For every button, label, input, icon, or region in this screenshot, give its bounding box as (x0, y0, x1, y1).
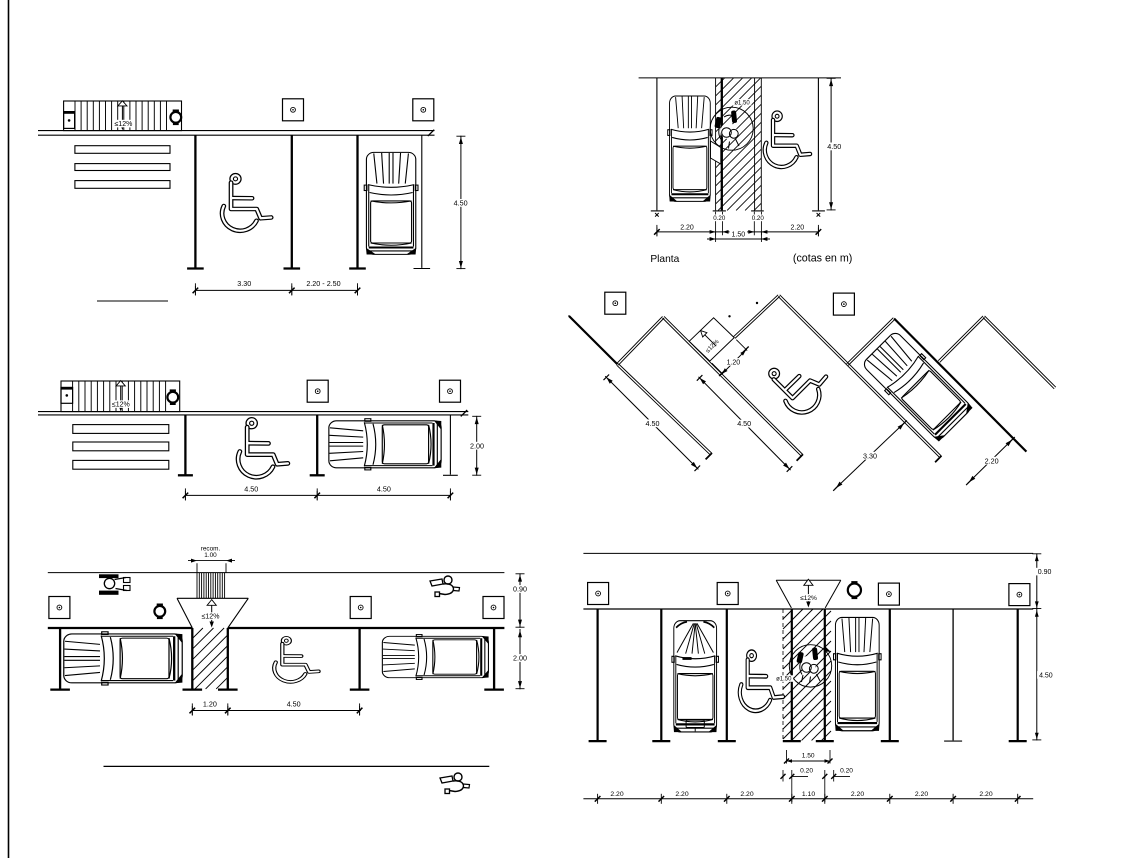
svg-text:4.50: 4.50 (377, 485, 391, 494)
svg-text:≤12%: ≤12% (800, 595, 817, 602)
svg-text:Planta: Planta (650, 254, 679, 265)
svg-text:3.30: 3.30 (237, 279, 251, 288)
svg-text:1.50: 1.50 (802, 752, 815, 759)
svg-text:2.20: 2.20 (851, 791, 864, 798)
svg-text:2.20: 2.20 (915, 791, 928, 798)
svg-text:ø1.50: ø1.50 (776, 677, 792, 683)
svg-text:2.20: 2.20 (979, 791, 992, 798)
svg-text:4.50: 4.50 (1039, 672, 1053, 679)
svg-text:2.00: 2.00 (513, 654, 527, 663)
svg-text:2.20: 2.20 (675, 791, 688, 798)
svg-text:2.20 - 2.50: 2.20 - 2.50 (306, 279, 340, 288)
svg-text:4.50: 4.50 (454, 199, 468, 208)
svg-text:1.20: 1.20 (727, 359, 741, 366)
svg-text:2.20: 2.20 (610, 791, 623, 798)
svg-text:0.90: 0.90 (1038, 569, 1052, 576)
svg-text:4.50: 4.50 (244, 485, 258, 494)
svg-text:2.00: 2.00 (470, 441, 484, 450)
svg-text:2.20: 2.20 (680, 225, 694, 232)
svg-text:4.50: 4.50 (646, 419, 660, 428)
svg-text:0.20: 0.20 (840, 768, 853, 775)
svg-text:0.20: 0.20 (713, 215, 726, 222)
svg-text:ø1.50: ø1.50 (734, 101, 750, 107)
svg-text:2.20: 2.20 (790, 225, 804, 232)
svg-text:≤12%: ≤12% (112, 402, 130, 409)
svg-text:1.20: 1.20 (203, 699, 217, 708)
svg-text:1.00: 1.00 (204, 552, 217, 559)
svg-text:≤12%: ≤12% (114, 121, 132, 128)
svg-text:(cotas en m): (cotas en m) (793, 253, 852, 265)
svg-text:3.30: 3.30 (863, 451, 877, 460)
svg-text:2.20: 2.20 (740, 791, 753, 798)
svg-text:4.50: 4.50 (287, 699, 301, 708)
svg-text:1.10: 1.10 (802, 791, 815, 798)
svg-text:≤12%: ≤12% (202, 614, 220, 621)
svg-text:0.20: 0.20 (800, 768, 813, 775)
svg-text:0.90: 0.90 (513, 585, 527, 594)
svg-text:1.50: 1.50 (731, 231, 745, 238)
svg-text:4.50: 4.50 (827, 142, 841, 151)
svg-text:0.20: 0.20 (752, 215, 765, 222)
svg-text:4.50: 4.50 (737, 419, 751, 428)
svg-text:2.20: 2.20 (985, 456, 999, 465)
